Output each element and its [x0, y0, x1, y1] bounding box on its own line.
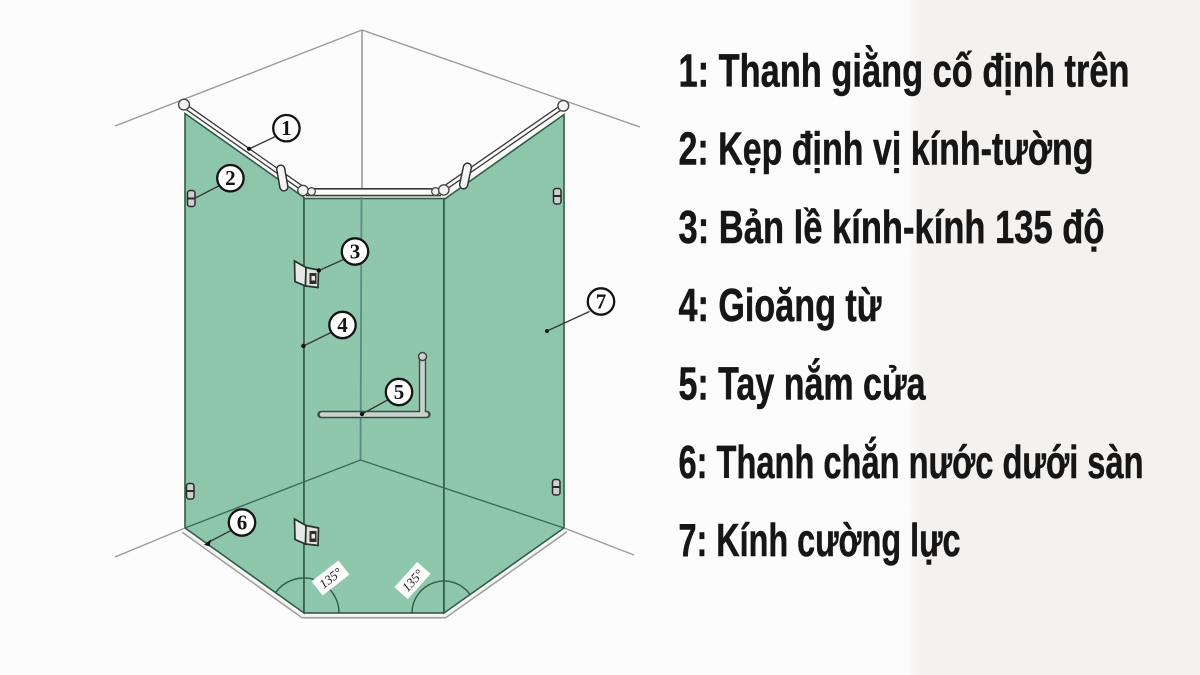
svg-text:5: 5 — [394, 380, 405, 404]
svg-text:7: 7 — [596, 290, 607, 314]
svg-text:3: Bản lề kính-kính 135 độ: 3: Bản lề kính-kính 135 độ — [679, 201, 1105, 253]
svg-text:4: Gioăng từ: 4: Gioăng từ — [679, 279, 883, 331]
svg-text:7: Kính cường lực: 7: Kính cường lực — [679, 514, 961, 566]
svg-text:2: 2 — [225, 166, 236, 190]
svg-text:1: Thanh giằng cố định trên: 1: Thanh giằng cố định trên — [679, 44, 1130, 96]
svg-text:1: 1 — [281, 116, 292, 140]
svg-text:5: Tay nắm cửa: 5: Tay nắm cửa — [679, 358, 926, 410]
svg-text:6: 6 — [237, 511, 248, 535]
svg-text:2: Kẹp định vị kính-tường: 2: Kẹp định vị kính-tường — [679, 123, 1094, 175]
svg-text:4: 4 — [337, 313, 348, 337]
svg-text:3: 3 — [350, 240, 361, 264]
svg-text:6: Thanh chắn nước dưới sàn: 6: Thanh chắn nước dưới sàn — [679, 436, 1144, 488]
